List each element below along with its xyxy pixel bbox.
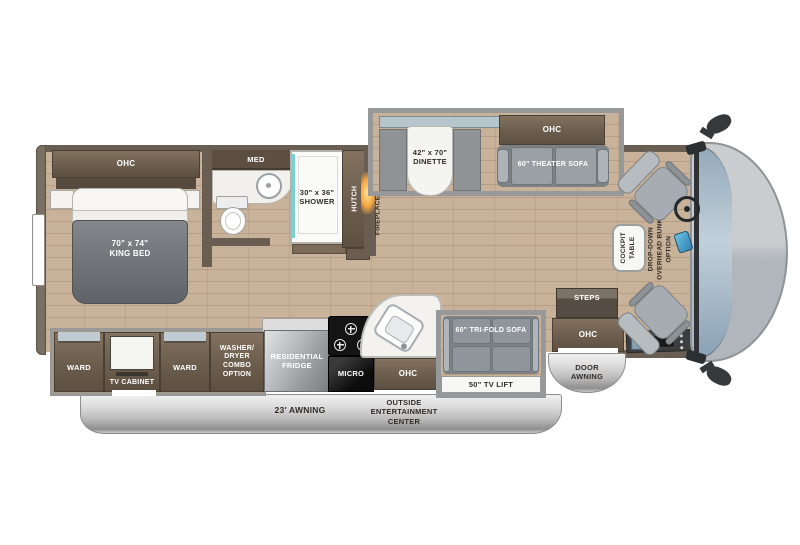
sofa-slideout: 60" TRI-FOLD SOFA 50" TV LIFT [436, 310, 546, 398]
ward-left-label: WARD [54, 356, 104, 380]
awning-label: 23' AWNING [240, 404, 360, 416]
king-bed-mattress [72, 220, 188, 304]
bed-pillows [72, 188, 188, 212]
tri-fold-cushion-3 [452, 346, 491, 372]
tv-cabinet-label: TV CABINET [102, 376, 162, 390]
hutch-label: HUTCH [350, 186, 359, 212]
rear-window [32, 214, 45, 286]
bedroom-ohc-label: OHC [52, 150, 200, 178]
ward-right-label: WARD [160, 356, 210, 380]
wd-line1: WASHER/ [220, 345, 254, 354]
theater-sofa: 60" THEATER SOFA [497, 145, 609, 187]
kitchen-ohc-label: OHC [374, 358, 442, 390]
cockpit-table-line1: COCKPIT [620, 232, 629, 263]
console-knob-3 [680, 346, 683, 349]
cockpit-table-line2: TABLE [629, 232, 638, 263]
tri-fold-sofa-label: 60" TRI-FOLD SOFA [443, 325, 539, 337]
tv-lift-label: 50" TV LIFT [441, 376, 541, 393]
toilet-bowl-inner [225, 212, 241, 230]
kitchen-sink-basin [383, 314, 416, 345]
mirror-top-head [704, 111, 734, 136]
oec-line1: OUTSIDE [386, 398, 421, 407]
tv-screen [110, 336, 154, 370]
steps-label: STEPS [556, 290, 618, 306]
door-awning-line2: AWNING [571, 372, 603, 381]
door-awning-label: DOOR AWNING [552, 359, 622, 385]
dinette-slideout: 42" x 70" DINETTE OHC 60" THEATER SOFA [368, 108, 624, 196]
wardrobe-slideout: WARD TV CABINET WARD WASHER/ DRYER COMBO… [50, 328, 266, 396]
oec-line2: ENTERTAINMENT [371, 407, 438, 416]
king-bed-label: 70" x 74" KING BED [72, 236, 188, 262]
steering-wheel-hub [684, 206, 690, 212]
king-bed-size: 70" x 74" [112, 239, 149, 249]
cockpit-table-label: COCKPIT TABLE [620, 232, 638, 263]
entry-ohc-label: OHC [552, 318, 624, 352]
bed-bath-wall [202, 147, 212, 267]
fireplace-label: FIREPLACE [375, 195, 384, 235]
dinette-bench-left [379, 129, 407, 191]
dinette-name: DINETTE [413, 157, 447, 166]
ward-right-counter [164, 332, 206, 343]
cockpit-table-label-wrap: COCKPIT TABLE [612, 224, 646, 272]
steering-wheel [674, 196, 700, 222]
shower-sill [292, 244, 346, 254]
dinette-label: 42" x 70" DINETTE [407, 143, 453, 171]
dinette-bench-right [453, 129, 481, 191]
shower-name: SHOWER [299, 197, 334, 206]
ward-left-counter [58, 332, 100, 343]
rv-floorplan: 23' AWNING OUTSIDE ENTERTAINMENT CENTER … [0, 0, 800, 545]
microwave-label: MICRO [328, 364, 374, 384]
king-bed-name: KING BED [109, 249, 150, 259]
stove-burner-top [345, 323, 357, 335]
windshield [694, 146, 732, 358]
tri-fold-sofa: 60" TRI-FOLD SOFA [443, 316, 539, 374]
theater-sofa-label: 60" THEATER SOFA [499, 159, 607, 171]
wd-line3: COMBO [223, 362, 251, 371]
console-knob-2 [680, 340, 683, 343]
door-awning-line1: DOOR [575, 363, 599, 372]
dinette-size: 42" x 70" [413, 148, 447, 157]
med-cabinet-label: MED [212, 150, 300, 169]
wd-line2: DRYER [224, 353, 250, 362]
residential-fridge-label: RESIDENTIAL FRIDGE [264, 348, 330, 374]
tv-cabinet-toe-kick [112, 390, 156, 396]
nightstand-left [50, 190, 74, 209]
shower-size: 30" x 36" [300, 188, 334, 197]
kitchen-faucet [400, 342, 408, 350]
fridge-line1: RESIDENTIAL [271, 352, 324, 361]
wd-line4: OPTION [223, 371, 251, 380]
bath-bottom-wall [210, 238, 270, 246]
fridge-line2: FRIDGE [282, 361, 312, 370]
bunk-line3: OPTION [665, 218, 674, 279]
outside-entertainment-label: OUTSIDE ENTERTAINMENT CENTER [352, 394, 456, 430]
theater-ohc-label: OHC [499, 115, 605, 145]
mirror-bottom-head [704, 363, 734, 388]
washer-dryer-label: WASHER/ DRYER COMBO OPTION [210, 336, 264, 388]
stove-burner-left [334, 339, 346, 351]
bath-sink-drain [266, 183, 271, 188]
tri-fold-cushion-4 [492, 346, 531, 372]
shower-label: 30" x 36" SHOWER [292, 184, 342, 210]
oec-line3: CENTER [388, 417, 420, 426]
